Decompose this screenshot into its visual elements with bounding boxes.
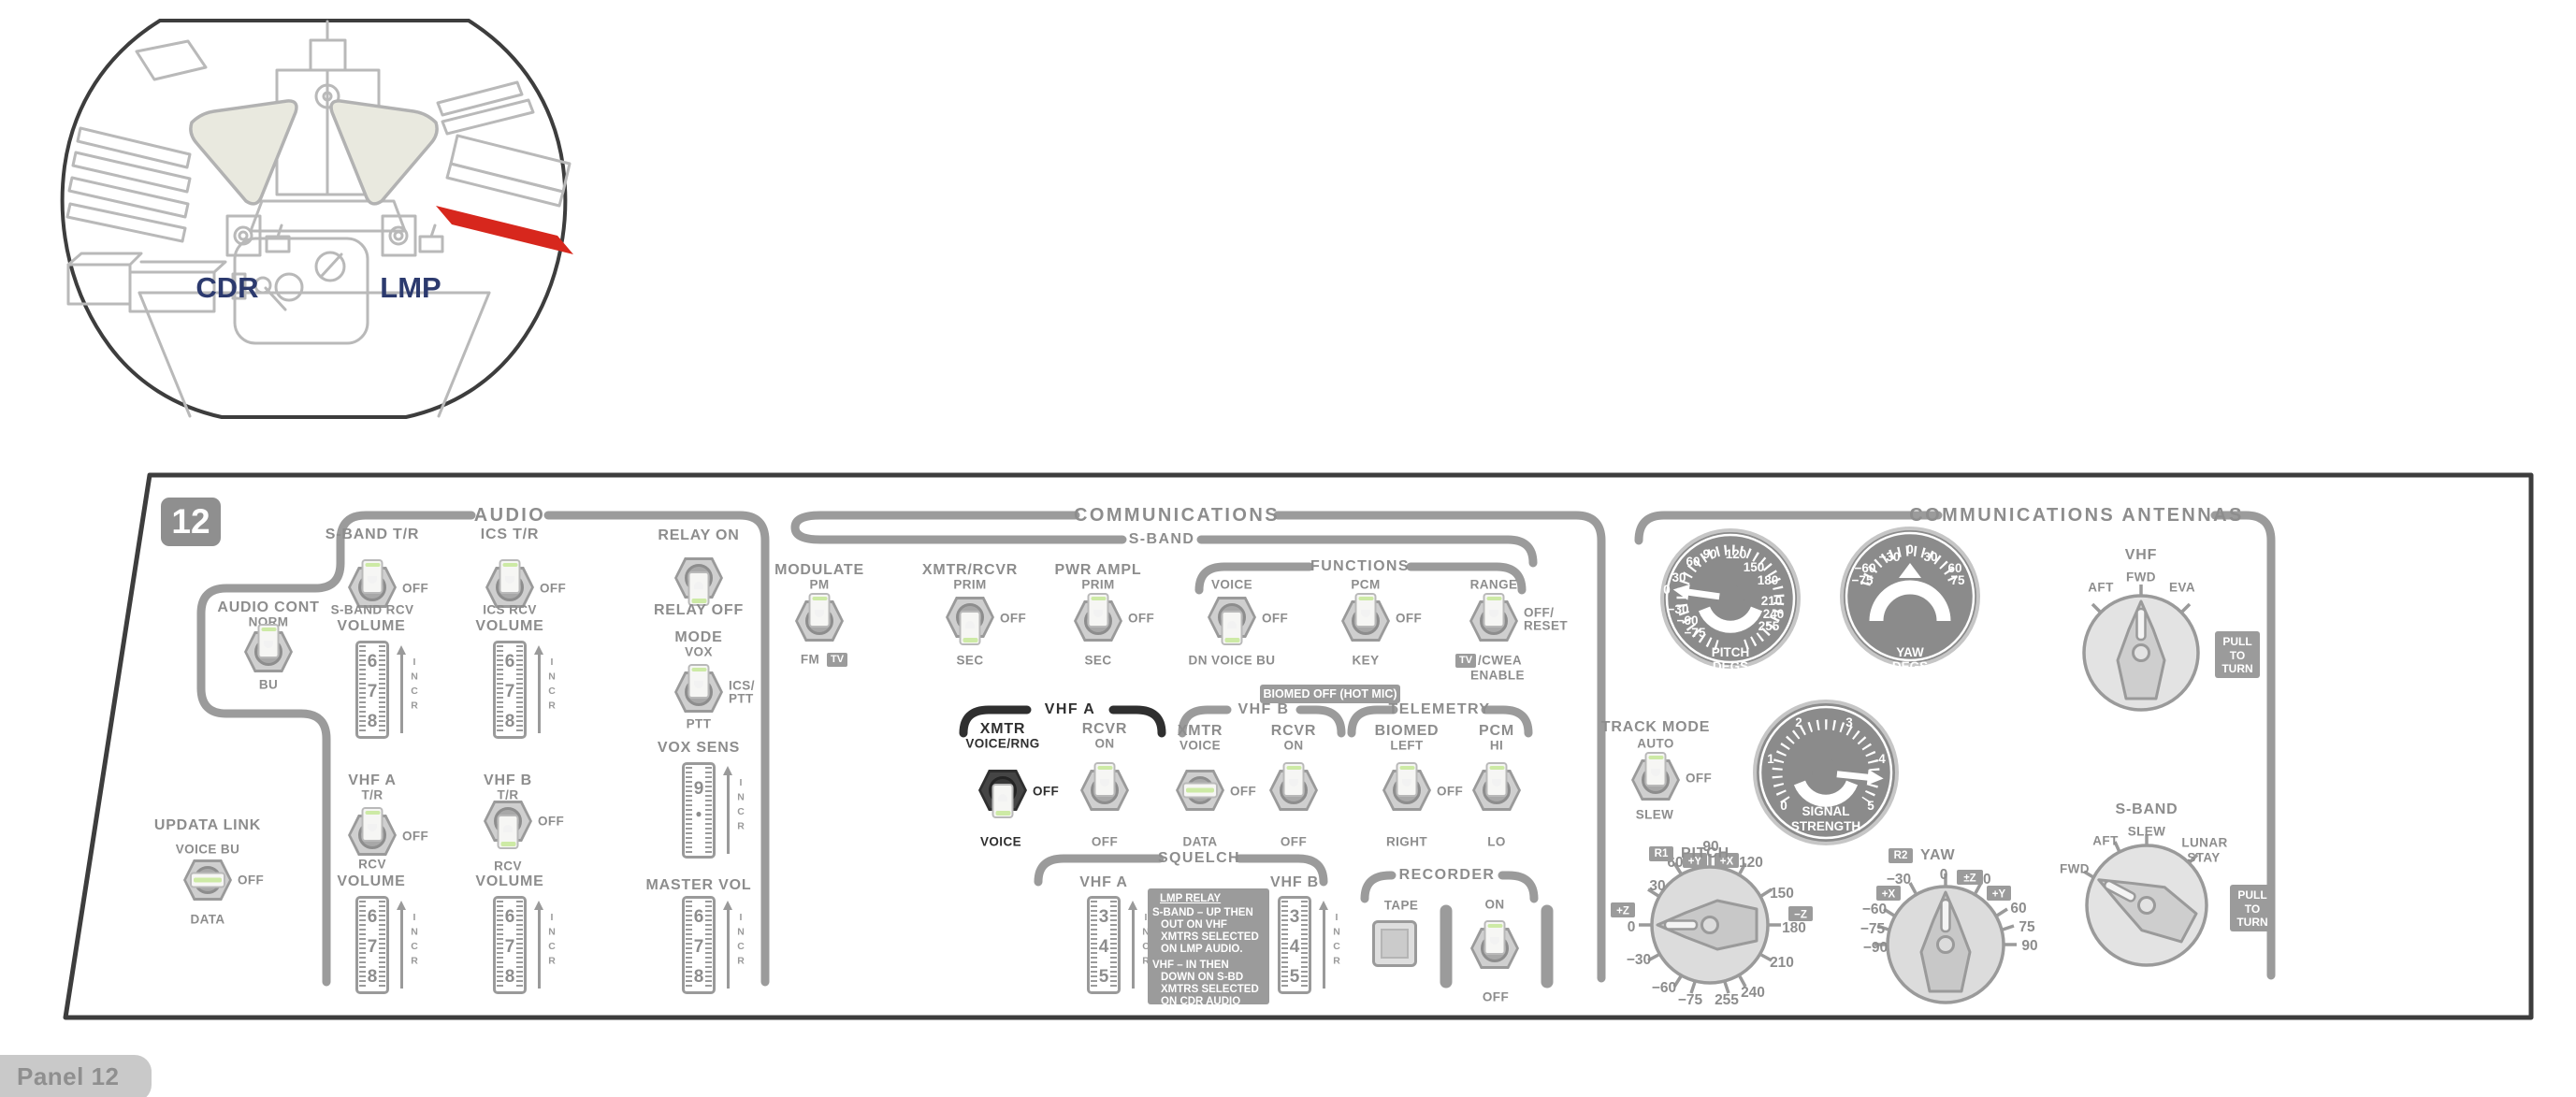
pitch-gauge-tick: 0: [1663, 583, 1671, 597]
relay-off-label: RELAY OFF: [654, 603, 744, 618]
yaw-degs-gauge: 0 30 60 75 −30 −60 −75 YAW DEGS: [1842, 528, 1978, 673]
pwr-ampl-sec-label: SEC: [1085, 654, 1112, 667]
audio-cont-bu-label: BU: [259, 678, 278, 691]
s-band-tr-label: S-BAND T/R: [326, 527, 419, 542]
yaw-dial-tick: 75: [2019, 919, 2035, 935]
yaw-dial-tick: −30: [1887, 872, 1911, 888]
tlm-biomed-switch[interactable]: [1382, 770, 1431, 811]
vhf-a-xmtr-voice-label: VOICE: [980, 835, 1021, 848]
modulate-switch[interactable]: [795, 600, 844, 642]
vhf-b-rcvr-on-label: ON: [1283, 739, 1303, 752]
vhf-a-volume-label: VOLUME: [337, 874, 405, 889]
yaw-gauge-tick: 30: [1923, 550, 1937, 564]
squelch-vhf-a-label: VHF A: [1079, 875, 1127, 890]
func-voice-switch[interactable]: [1208, 597, 1256, 638]
functions-subsection-header: FUNCTIONS: [1310, 559, 1410, 574]
vhf-a-tr-label: T/R: [362, 788, 384, 801]
ics-rcv-label: ICS RCV: [483, 603, 537, 616]
tlm-biomed-left-label: LEFT: [1390, 739, 1423, 752]
ics-tr-label: ICS T/R: [481, 527, 540, 542]
range-off-label: OFF/: [1524, 606, 1554, 619]
tape-button[interactable]: [1372, 920, 1417, 967]
antenna-pitch-dial[interactable]: 0 30 60 90 120 150 180 210 240 255 −30 −…: [1611, 839, 1813, 1008]
modulate-pm-label: PM: [809, 578, 829, 591]
pitch-degs-gauge: 0 30 60 90 120 150 180 210 240 255 −30 −…: [1662, 530, 1799, 673]
pitch-gauge-tick: 60: [1686, 555, 1700, 569]
mode-ptt-right-label: PTT: [729, 692, 754, 705]
incr-arrow: INCR: [534, 901, 562, 990]
lmp-relay-note: LMP RELAY S-BAND – UP THENOUT ON VHFXMTR…: [1148, 888, 1269, 1004]
yaw-dial-tick: −60: [1862, 902, 1887, 917]
r2-badge: R2: [1889, 848, 1913, 863]
pitch-dial-tick: 180: [1782, 920, 1806, 936]
mode-vox-label: VOX: [685, 645, 713, 658]
tape-label: TAPE: [1384, 899, 1419, 912]
yaw-dial-tick: −75: [1860, 921, 1886, 937]
yaw-dial-tick: 0: [1940, 867, 1948, 883]
yaw-gauge-title: DEGS: [1892, 659, 1928, 673]
sband-knob-title: S-BAND: [2115, 802, 2178, 817]
tlm-pcm-lo-label: LO: [1487, 835, 1506, 848]
vhf-b-tr-switch[interactable]: [484, 801, 532, 842]
pitch-dial-tick: −60: [1652, 980, 1676, 996]
vhf-b-tr-label: T/R: [498, 788, 519, 801]
vhf-b-xmtr-title: XMTR: [1178, 724, 1223, 739]
squelch-vhf-a-wheel[interactable]: 3 4 5: [1087, 896, 1121, 994]
plus-z-badge: +Z: [1616, 906, 1629, 917]
sband-aft-label: AFT: [2092, 834, 2118, 847]
updata-voice-bu-label: VOICE BU: [176, 843, 239, 856]
incr-arrow: INCR: [397, 645, 425, 735]
vhf-a-xmtr-voice-rng-label: VOICE/RNG: [965, 737, 1039, 750]
biomed-off-badge: BIOMED OFF (HOT MIC): [1260, 685, 1400, 703]
signal-gauge-tick: 0: [1780, 799, 1787, 813]
sband-fwd-label: FWD: [2060, 862, 2090, 875]
func-pcm-label: PCM: [1351, 578, 1380, 591]
wheel-value: 7: [496, 937, 524, 958]
communications-section-header: COMMUNICATIONS: [1074, 506, 1280, 525]
xmtr-rcvr-title: XMTR/RCVR: [922, 563, 1018, 578]
mode-title: MODE: [674, 630, 722, 645]
func-voice-label: VOICE: [1211, 578, 1252, 591]
signal-gauge-tick: 1: [1767, 752, 1774, 766]
wheel-value: 7: [358, 937, 386, 958]
s-band-tr-off-label: OFF: [402, 582, 428, 595]
vhf-a-rcvr-title: RCVR: [1082, 722, 1128, 737]
vox-sens-title: VOX SENS: [658, 741, 740, 756]
sband-slew-label: SLEW: [2128, 825, 2166, 838]
pitch-dial-tick: 120: [1739, 855, 1763, 871]
pitch-gauge-tick: 180: [1758, 573, 1779, 587]
vhf-antenna-knob[interactable]: [2084, 585, 2198, 710]
footer-panel-text: Panel 12: [17, 1062, 120, 1091]
vhf-a-subsection-header: VHF A: [1045, 702, 1095, 717]
vhf-b-xmtr-switch[interactable]: [1176, 770, 1224, 811]
func-voice-off-label: OFF: [1262, 612, 1288, 625]
signal-gauge-tick: 4: [1878, 752, 1886, 766]
yaw-dial-title: YAW: [1920, 848, 1955, 863]
func-pcm-switch[interactable]: [1341, 600, 1390, 642]
track-mode-switch[interactable]: [1631, 759, 1680, 801]
func-key-label: KEY: [1353, 654, 1380, 667]
pitch-dial-tick: 210: [1770, 955, 1794, 971]
master-vol-title: MASTER VOL: [646, 878, 752, 893]
signal-strength-gauge: 0 1 2 3 4 5 SIGNAL STRENGTH: [1755, 701, 1897, 844]
yaw-dial-tick: 60: [2010, 901, 2026, 917]
sband-subsection-header: S-BAND: [1129, 532, 1195, 547]
pitch-gauge-title: DEGS: [1713, 659, 1748, 673]
pitch-gauge-tick: 150: [1744, 560, 1765, 574]
vhf-a-volume-wheel[interactable]: 6 7 8: [355, 896, 389, 994]
sband-pull-to-turn-badge: PULLTOTURN: [2230, 885, 2275, 931]
vhf-aft-label: AFT: [2088, 581, 2113, 594]
vox-sens-wheel[interactable]: 9 ●: [682, 762, 716, 859]
xmtr-rcvr-prim-label: PRIM: [953, 578, 986, 591]
wheel-value: 6: [496, 907, 524, 928]
vhf-b-tr-title: VHF B: [484, 773, 532, 788]
s-band-volume-wheel[interactable]: 6 7 8: [355, 641, 389, 739]
wheel-value: 8: [496, 712, 524, 732]
ics-volume-label: VOLUME: [475, 619, 543, 634]
recorder-off-label: OFF: [1483, 990, 1509, 1003]
vhf-a-tr-title: VHF A: [348, 773, 396, 788]
footer-panel-label: Panel 12: [0, 1055, 152, 1097]
wheel-value: 7: [685, 937, 713, 958]
tlm-pcm-title: PCM: [1479, 724, 1514, 739]
wheel-value: 6: [358, 907, 386, 928]
lmp-relay-note-title: LMP RELAY: [1160, 893, 1265, 905]
wheel-value: 7: [496, 682, 524, 702]
wheel-value: 5: [1090, 967, 1118, 988]
master-vol-wheel[interactable]: 6 7 8: [682, 896, 716, 994]
relay-switch[interactable]: [674, 557, 723, 599]
pitch-gauge-tick: 120: [1726, 547, 1747, 561]
updata-link-switch[interactable]: [183, 859, 232, 901]
vhf-b-subsection-header: VHF B: [1238, 702, 1290, 717]
s-band-volume-label: VOLUME: [337, 619, 405, 634]
comm-antennas-section-header: COMMUNICATIONS ANTENNAS: [1909, 506, 2243, 525]
track-mode-slew-label: SLEW: [1636, 808, 1674, 821]
vhf-pull-to-turn-badge: PULLTOTURN: [2215, 631, 2260, 678]
pwr-ampl-title: PWR AMPL: [1055, 563, 1142, 578]
tlm-pcm-switch[interactable]: [1472, 770, 1521, 811]
recorder-on-label: ON: [1484, 898, 1504, 911]
incr-arrow: INCR: [397, 901, 425, 990]
ics-volume-wheel[interactable]: 6 7 8: [493, 641, 527, 739]
squelch-vhf-b-wheel[interactable]: 3 4 5: [1278, 896, 1311, 994]
yaw-gauge-tick: −30: [1879, 550, 1901, 564]
vhf-a-rcv-label: RCV: [358, 858, 386, 871]
vhf-a-tr-off-label: OFF: [402, 830, 428, 843]
yaw-gauge-title: YAW: [1896, 645, 1924, 659]
pitch-dial-tick: 240: [1741, 985, 1765, 1001]
xmtr-rcvr-switch[interactable]: [946, 597, 994, 638]
panel-12-diagram: CDR LMP 0 30 60 90 120 150 180 210 240 2…: [0, 0, 2576, 1097]
pitch-dial-tick: 0: [1628, 919, 1636, 935]
vhf-b-rcvr-title: RCVR: [1271, 724, 1317, 739]
wheel-value: 3: [1281, 907, 1309, 928]
r1-badge: R1: [1649, 846, 1673, 861]
vhf-fwd-label: FWD: [2126, 570, 2156, 584]
incr-arrow: INCR: [534, 645, 562, 735]
track-mode-off-label: OFF: [1686, 772, 1712, 785]
updata-data-label: DATA: [190, 913, 224, 926]
wheel-value: 8: [496, 967, 524, 988]
wheel-value: 9: [685, 779, 713, 800]
signal-gauge-title: SIGNAL: [1802, 804, 1849, 818]
range-reset-label: RESET: [1524, 619, 1568, 632]
tlm-biomed-off-label: OFF: [1437, 785, 1463, 798]
recorder-subsection-header: RECORDER: [1399, 868, 1496, 883]
modulate-tv-badge: TV: [827, 653, 847, 667]
vhf-b-rcv-label: RCV: [494, 859, 522, 873]
pitch-gauge-title: PITCH: [1712, 645, 1750, 659]
wheel-value: 6: [685, 907, 713, 928]
vhf-b-volume-label: VOLUME: [475, 874, 543, 889]
xmtr-rcvr-sec-label: SEC: [957, 654, 984, 667]
panel-number-badge: 12: [161, 498, 221, 546]
wheel-value: ●: [685, 807, 713, 820]
mode-switch[interactable]: [674, 671, 723, 713]
incr-arrow: INCR: [723, 766, 751, 856]
func-range-label: RANGE: [1470, 578, 1518, 591]
func-pcm-off-label: OFF: [1396, 612, 1422, 625]
vhf-eva-label: EVA: [2169, 581, 2195, 594]
mode-ptt-label: PTT: [687, 717, 712, 730]
yaw-gauge-tick: 75: [1950, 573, 1965, 587]
wheel-value: 4: [1281, 937, 1309, 958]
telemetry-subsection-header: TELEMETRY: [1389, 702, 1491, 717]
sband-lunar-label: LUNAR: [2181, 836, 2227, 849]
range-tv-badge: TV: [1455, 654, 1476, 668]
updata-off-label: OFF: [238, 873, 264, 887]
s-band-rcv-label: S-BAND RCV: [331, 603, 414, 616]
track-mode-title: TRACK MODE: [1601, 720, 1710, 735]
modulate-fm-label: FM: [801, 653, 819, 666]
pm-z-badge: ±Z: [1963, 873, 1975, 885]
vhf-b-xmtr-data-label: DATA: [1182, 835, 1217, 848]
wheel-value: 8: [358, 967, 386, 988]
audio-section-header: AUDIO: [474, 506, 545, 525]
sband-stay-label: STAY: [2187, 851, 2220, 864]
track-mode-auto-label: AUTO: [1637, 737, 1674, 750]
signal-gauge-tick: 3: [1845, 715, 1853, 729]
vhf-b-tr-off-label: OFF: [538, 815, 564, 828]
pitch-dial-tick: −75: [1678, 992, 1703, 1008]
updata-link-title: UPDATA LINK: [154, 818, 261, 833]
pitch-gauge-tick: 255: [1758, 619, 1780, 633]
incr-arrow: INCR: [1319, 901, 1347, 990]
pitch-gauge-tick: −75: [1685, 626, 1706, 640]
signal-gauge-tick: 5: [1867, 799, 1874, 813]
yaw-dial-tick: 90: [2021, 938, 2037, 954]
vhf-b-rcvr-switch[interactable]: [1269, 770, 1318, 811]
wheel-value: 8: [685, 967, 713, 988]
vhf-b-xmtr-voice-label: VOICE: [1179, 739, 1221, 752]
audio-cont-title: AUDIO CONT: [217, 600, 319, 615]
yaw-gauge-tick: −75: [1852, 573, 1874, 587]
vhf-a-tr-switch[interactable]: [348, 815, 397, 856]
recorder-switch[interactable]: [1470, 928, 1519, 969]
plus-x-badge: +X: [1882, 889, 1896, 901]
plus-y-badge: +Y: [1992, 889, 2006, 901]
wheel-value: 6: [496, 652, 524, 672]
tlm-pcm-hi-label: HI: [1490, 739, 1503, 752]
incr-arrow: INCR: [723, 901, 751, 990]
yaw-gauge-tick: 0: [1906, 542, 1914, 556]
pitch-gauge-tick: 30: [1672, 570, 1686, 585]
pitch-gauge-tick: 90: [1702, 547, 1716, 561]
yaw-dial-tick: −90: [1863, 940, 1888, 956]
vhf-a-rcvr-on-label: ON: [1094, 737, 1114, 750]
pitch-dial-tick: 150: [1770, 886, 1794, 902]
wheel-value: 4: [1090, 937, 1118, 958]
squelch-subsection-header: SQUELCH: [1158, 851, 1240, 866]
signal-gauge-tick: 2: [1795, 715, 1802, 729]
antenna-yaw-dial[interactable]: 0 30 60 75 90 −30 −60 −75 −90 ±Z +Y +X: [1860, 867, 2038, 1003]
dn-voice-bu-label: DN VOICE BU: [1189, 654, 1276, 667]
minus-z-badge: −Z: [1794, 910, 1807, 921]
range-cwea-label: /CWEA: [1478, 654, 1522, 667]
func-range-switch[interactable]: [1469, 600, 1518, 642]
pitch-dial-tick: −30: [1627, 952, 1651, 968]
vhf-b-rcvr-off-label: OFF: [1281, 835, 1307, 848]
vhf-a-xmtr-title: XMTR: [980, 722, 1026, 737]
pitch-dial-title: PITCH: [1681, 846, 1729, 861]
wheel-value: 5: [1281, 967, 1309, 988]
mode-ics-label: ICS/: [729, 679, 755, 692]
range-enable-label: ENABLE: [1470, 669, 1525, 682]
ics-tr-off-label: OFF: [540, 582, 566, 595]
wheel-value: 7: [358, 682, 386, 702]
pwr-ampl-prim-label: PRIM: [1081, 578, 1114, 591]
wheel-value: 6: [358, 652, 386, 672]
pwr-ampl-off-label: OFF: [1128, 612, 1154, 625]
squelch-vhf-b-label: VHF B: [1270, 875, 1319, 890]
audio-cont-switch[interactable]: [244, 631, 293, 672]
pitch-gauge-tick: 210: [1761, 594, 1783, 608]
tlm-biomed-title: BIOMED: [1375, 724, 1440, 739]
vhf-b-xmtr-off-label: OFF: [1230, 785, 1256, 798]
wheel-value: 8: [358, 712, 386, 732]
pitch-dial-tick: 255: [1715, 992, 1739, 1008]
vhf-knob-title: VHF: [2125, 548, 2157, 563]
modulate-title: MODULATE: [774, 563, 864, 578]
vhf-a-rcvr-switch[interactable]: [1080, 770, 1129, 811]
tlm-biomed-right-label: RIGHT: [1386, 835, 1427, 848]
pitch-dial-tick: 30: [1649, 878, 1665, 894]
relay-on-label: RELAY ON: [658, 528, 739, 543]
pwr-ampl-switch[interactable]: [1074, 600, 1122, 642]
wheel-value: 3: [1090, 907, 1118, 928]
vhf-b-volume-wheel[interactable]: 6 7 8: [493, 896, 527, 994]
vhf-a-rcvr-off-label: OFF: [1092, 835, 1118, 848]
signal-gauge-title: STRENGTH: [1791, 819, 1860, 833]
xmtr-rcvr-off-label: OFF: [1000, 612, 1026, 625]
vhf-a-xmtr-switch[interactable]: [978, 770, 1027, 811]
vhf-a-xmtr-off-label: OFF: [1033, 785, 1059, 798]
